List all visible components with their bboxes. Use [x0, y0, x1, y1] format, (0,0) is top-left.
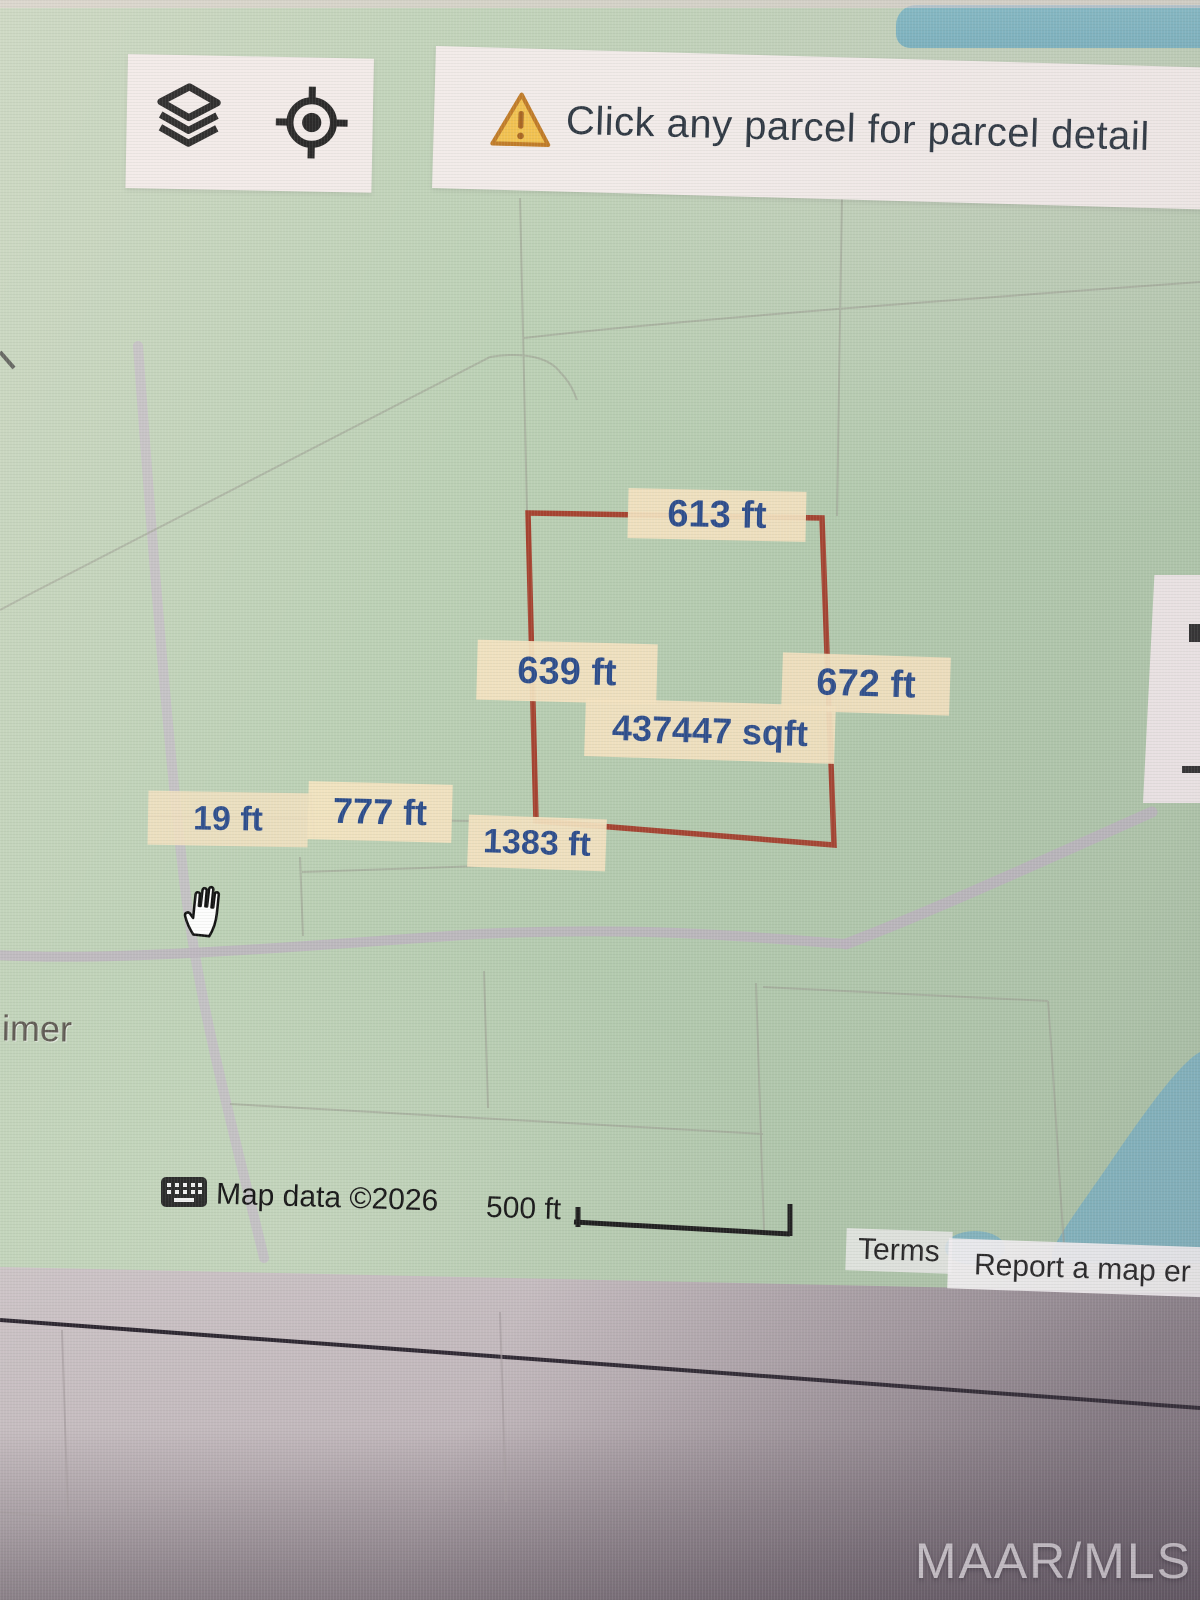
report-map-error-link[interactable]: Report a map er — [947, 1238, 1200, 1297]
scale-bar — [574, 1204, 790, 1236]
zoom-out-button[interactable] — [1182, 766, 1200, 773]
mls-watermark: MAAR/MLS — [915, 1532, 1192, 1590]
page-below-lines — [0, 1312, 506, 1518]
report-map-error-label: Report a map er — [973, 1248, 1200, 1290]
place-label-partial: imer — [2, 1007, 73, 1050]
map-data-attribution: Map data ©2026 — [216, 1178, 439, 1219]
map-toolbar — [125, 54, 374, 193]
zoom-in-button[interactable] — [1189, 624, 1200, 642]
photo-edge-strip — [0, 0, 1200, 8]
measurement-label-area: 437447 sqft — [584, 698, 836, 764]
pan-hand-cursor — [175, 877, 237, 943]
layers-icon[interactable] — [146, 78, 230, 167]
map-screenshot-photo: 613 ft 639 ft 672 ft 437447 sqft 1383 ft… — [0, 0, 1200, 1600]
measurement-label-left: 639 ft — [476, 640, 658, 705]
measurement-label-top: 613 ft — [627, 488, 806, 542]
measurement-label-777: 777 ft — [307, 781, 452, 843]
measurement-label-19: 19 ft — [148, 791, 309, 848]
map-edge-mark — [0, 352, 14, 368]
parcel-notice-banner: Click any parcel for parcel detail — [432, 46, 1200, 210]
keyboard-shortcuts-icon[interactable] — [160, 1176, 208, 1213]
screen-bottom-edge — [0, 1320, 1200, 1408]
terms-link[interactable]: Terms — [845, 1228, 952, 1274]
water-body-bottom — [1052, 1052, 1200, 1263]
scale-label: 500 ft — [485, 1191, 561, 1227]
warning-triangle-icon — [489, 90, 553, 150]
measurement-label-bottom: 1383 ft — [467, 815, 607, 872]
my-location-icon[interactable] — [269, 80, 353, 169]
banner-message: Click any parcel for parcel detail — [565, 98, 1150, 159]
